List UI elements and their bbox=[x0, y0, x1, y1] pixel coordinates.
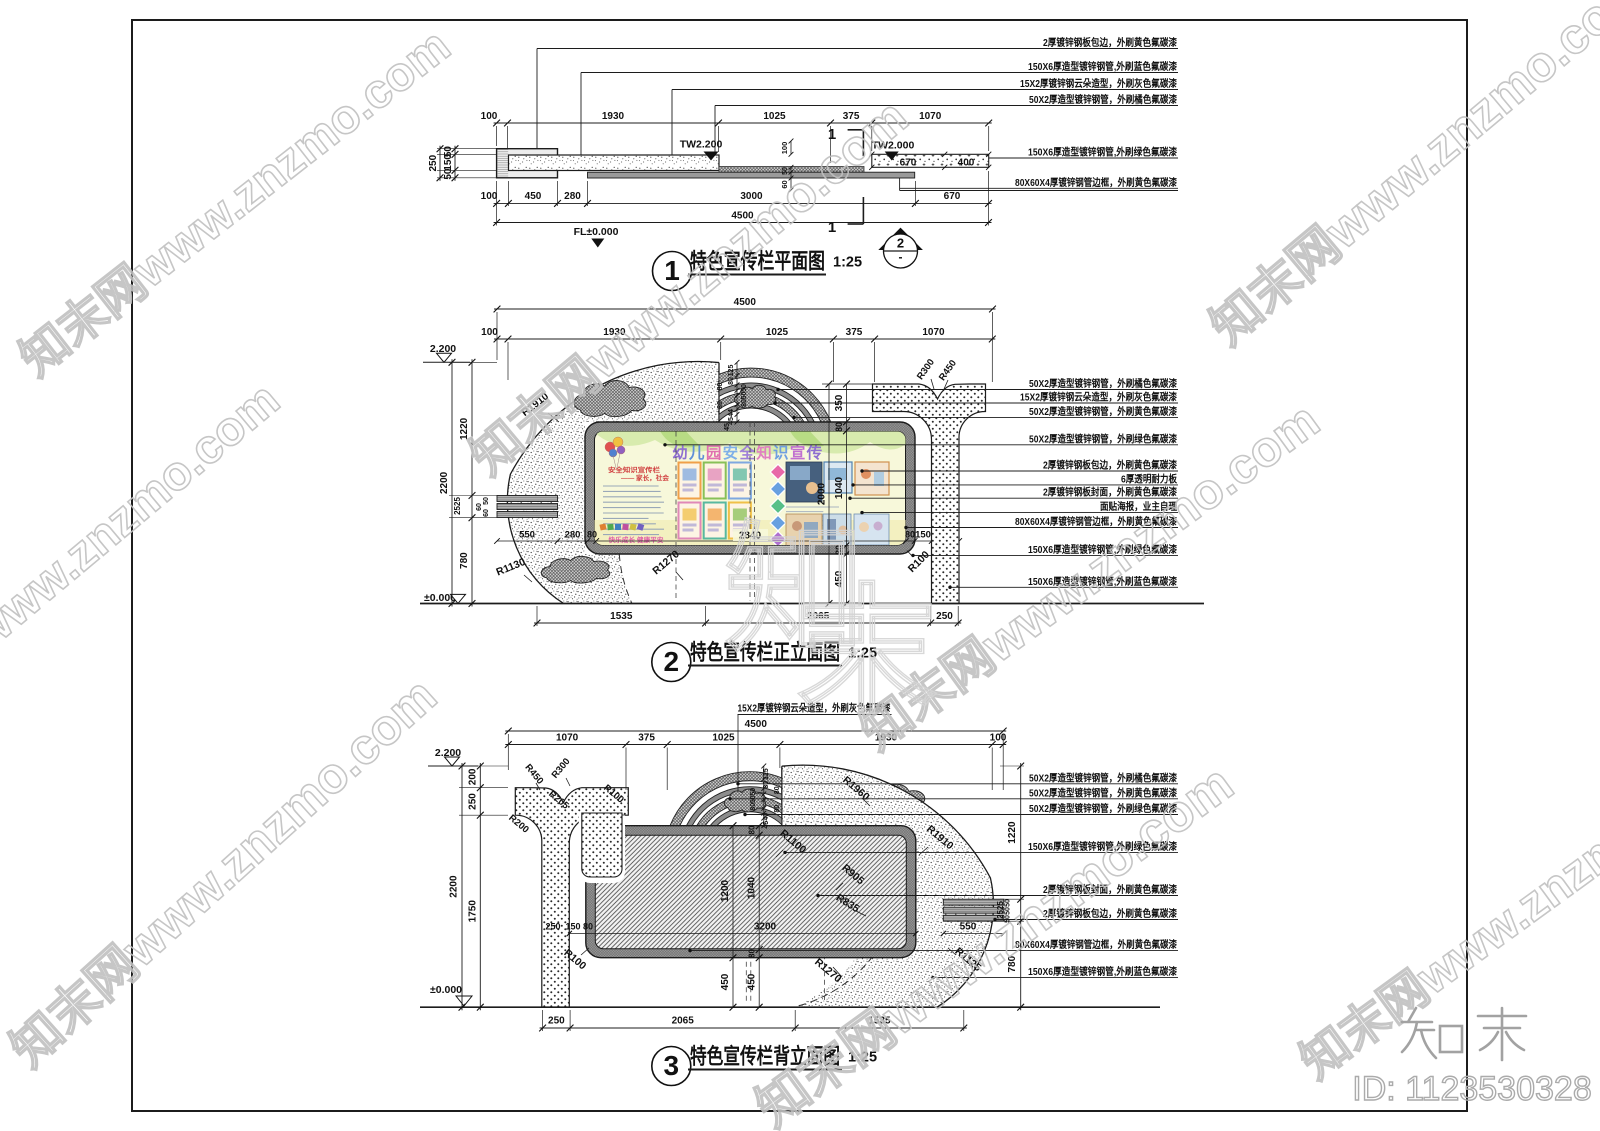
svg-text:670: 670 bbox=[900, 158, 917, 169]
svg-text:200: 200 bbox=[468, 768, 479, 785]
svg-text:50X2厚造型镀锌钢管，外刷橘色氟碳漆: 50X2厚造型镀锌钢管，外刷橘色氟碳漆 bbox=[1029, 771, 1177, 784]
svg-text:250: 250 bbox=[548, 1016, 565, 1027]
svg-text:快乐成长 健康平安: 快乐成长 健康平安 bbox=[609, 535, 665, 544]
svg-text:2200: 2200 bbox=[449, 875, 460, 898]
svg-text:100: 100 bbox=[481, 327, 498, 338]
svg-text:280: 280 bbox=[564, 191, 581, 202]
svg-text:末: 末 bbox=[797, 573, 937, 730]
svg-text:1040: 1040 bbox=[834, 476, 845, 499]
svg-text:670: 670 bbox=[944, 191, 961, 202]
svg-text:50X2厚造型镀锌钢管，外刷绿色氟碳漆: 50X2厚造型镀锌钢管，外刷绿色氟碳漆 bbox=[1029, 432, 1177, 445]
svg-text:50X2厚造型镀锌钢管，外刷橘色氟碳漆: 50X2厚造型镀锌钢管，外刷橘色氟碳漆 bbox=[1029, 93, 1177, 106]
svg-text:150X6厚造型镀锌钢管,外刷绿色氟碳漆: 150X6厚造型镀锌钢管,外刷绿色氟碳漆 bbox=[1028, 146, 1177, 159]
svg-text:3: 3 bbox=[664, 1050, 680, 1081]
svg-text:传: 传 bbox=[806, 443, 823, 462]
svg-text:1: 1 bbox=[828, 219, 836, 236]
svg-text:1040: 1040 bbox=[747, 876, 758, 899]
svg-text:450: 450 bbox=[747, 973, 758, 990]
svg-text:15X2厚镀锌钢云朵造型，外刷灰色氟碳漆: 15X2厚镀锌钢云朵造型，外刷灰色氟碳漆 bbox=[1020, 77, 1177, 90]
svg-text:1750: 1750 bbox=[468, 900, 479, 923]
svg-text:250: 250 bbox=[545, 922, 560, 932]
svg-text:80: 80 bbox=[583, 922, 593, 932]
svg-text:4500: 4500 bbox=[745, 719, 768, 730]
svg-text:80: 80 bbox=[717, 383, 724, 391]
svg-text:幼: 幼 bbox=[672, 443, 688, 462]
svg-text:100: 100 bbox=[780, 142, 789, 155]
svg-text:80: 80 bbox=[741, 399, 748, 407]
svg-text:125: 125 bbox=[728, 365, 735, 377]
svg-text:150: 150 bbox=[443, 154, 454, 171]
svg-text:50: 50 bbox=[750, 788, 757, 796]
svg-text:1930: 1930 bbox=[602, 111, 625, 122]
svg-text:80X60X4厚镀锌钢管边框，外刷黄色氟碳漆: 80X60X4厚镀锌钢管边框，外刷黄色氟碳漆 bbox=[1015, 176, 1177, 189]
svg-text:1025: 1025 bbox=[763, 111, 786, 122]
svg-text:550: 550 bbox=[519, 530, 535, 541]
svg-text:80: 80 bbox=[748, 949, 757, 958]
svg-text:50X2厚造型镀锌钢管，外刷黄色氟碳漆: 50X2厚造型镀锌钢管，外刷黄色氟碳漆 bbox=[1029, 405, 1177, 418]
svg-text:60: 60 bbox=[483, 509, 490, 517]
svg-text:2厚镀锌钢板包边，外刷黄色氟碳漆: 2厚镀锌钢板包边，外刷黄色氟碳漆 bbox=[1043, 459, 1177, 472]
svg-text:60: 60 bbox=[476, 503, 483, 511]
svg-text:安全知识宣传栏: 安全知识宣传栏 bbox=[608, 465, 661, 474]
svg-text:知: 知 bbox=[756, 443, 772, 462]
svg-text:250: 250 bbox=[428, 154, 439, 171]
svg-text:80: 80 bbox=[748, 825, 757, 834]
svg-text:80: 80 bbox=[834, 422, 844, 432]
svg-text:1200: 1200 bbox=[720, 879, 731, 902]
svg-text:1070: 1070 bbox=[919, 111, 942, 122]
svg-text:ID: 1123530328: ID: 1123530328 bbox=[1352, 1070, 1591, 1108]
svg-text:45: 45 bbox=[763, 821, 770, 829]
svg-text:±0.000: ±0.000 bbox=[430, 984, 462, 996]
svg-text:375: 375 bbox=[638, 733, 655, 744]
svg-text:FL±0.000: FL±0.000 bbox=[574, 226, 619, 238]
svg-text:1535: 1535 bbox=[610, 611, 633, 622]
svg-text:2525: 2525 bbox=[453, 497, 462, 515]
svg-text:2: 2 bbox=[897, 236, 904, 251]
svg-text:450: 450 bbox=[720, 973, 731, 990]
svg-text:1220: 1220 bbox=[1007, 821, 1018, 844]
svg-text:375: 375 bbox=[846, 327, 863, 338]
svg-text:40: 40 bbox=[763, 813, 770, 821]
svg-text:TW2.200: TW2.200 bbox=[680, 139, 723, 151]
svg-text:250: 250 bbox=[468, 793, 479, 810]
svg-text:2065: 2065 bbox=[672, 1016, 695, 1027]
svg-text:150X6厚造型镀锌钢管,外刷蓝色氟碳漆: 150X6厚造型镀锌钢管,外刷蓝色氟碳漆 bbox=[1028, 60, 1177, 73]
svg-text:125: 125 bbox=[763, 768, 770, 780]
svg-text:100: 100 bbox=[481, 111, 498, 122]
svg-text:80: 80 bbox=[728, 377, 735, 385]
svg-text:400: 400 bbox=[958, 158, 975, 169]
svg-text:1025: 1025 bbox=[712, 733, 735, 744]
svg-text:2: 2 bbox=[664, 646, 680, 677]
svg-text:1070: 1070 bbox=[556, 733, 579, 744]
svg-text:园: 园 bbox=[706, 444, 722, 462]
svg-text:4500: 4500 bbox=[734, 297, 757, 308]
svg-text:80: 80 bbox=[763, 781, 770, 789]
svg-text:50: 50 bbox=[741, 384, 748, 392]
svg-text:450: 450 bbox=[525, 191, 542, 202]
svg-text:80: 80 bbox=[750, 803, 757, 811]
svg-text:50: 50 bbox=[741, 392, 748, 400]
svg-text:安: 安 bbox=[723, 443, 739, 462]
svg-text:3200: 3200 bbox=[754, 922, 777, 933]
svg-text:44: 44 bbox=[728, 409, 735, 417]
svg-text:780: 780 bbox=[459, 552, 470, 569]
svg-text:1:25: 1:25 bbox=[833, 255, 862, 271]
svg-text:全: 全 bbox=[738, 443, 755, 462]
svg-text:50X2厚造型镀锌钢管，外刷橘色氟碳漆: 50X2厚造型镀锌钢管，外刷橘色氟碳漆 bbox=[1029, 377, 1177, 390]
svg-text:2200: 2200 bbox=[439, 471, 450, 494]
svg-text:1070: 1070 bbox=[922, 327, 945, 338]
svg-text:2000: 2000 bbox=[817, 482, 828, 505]
svg-text:250: 250 bbox=[936, 611, 953, 622]
svg-text:80: 80 bbox=[774, 786, 781, 794]
svg-text:280: 280 bbox=[565, 530, 581, 541]
svg-text:15X2厚镀锌钢云朵造型，外刷灰色氟碳漆: 15X2厚镀锌钢云朵造型，外刷灰色氟碳漆 bbox=[1020, 391, 1177, 404]
svg-text:儿: 儿 bbox=[688, 444, 705, 462]
svg-text:50: 50 bbox=[483, 497, 490, 505]
svg-text:1025: 1025 bbox=[766, 327, 789, 338]
svg-text:宣: 宣 bbox=[790, 443, 806, 462]
svg-text:100: 100 bbox=[481, 191, 498, 202]
svg-text:100: 100 bbox=[990, 733, 1007, 744]
svg-text:—— 家长，社会: —— 家长，社会 bbox=[621, 473, 670, 482]
svg-text:识: 识 bbox=[773, 444, 789, 462]
svg-text:80: 80 bbox=[774, 805, 781, 813]
svg-text:150X6厚造型镀锌钢管,外刷蓝色氟碳漆: 150X6厚造型镀锌钢管,外刷蓝色氟碳漆 bbox=[1028, 965, 1177, 978]
svg-text:±0.000: ±0.000 bbox=[424, 592, 456, 604]
svg-text:80: 80 bbox=[905, 530, 915, 540]
svg-text:-: - bbox=[899, 250, 903, 264]
svg-text:2厚镀锌钢板包边，外刷黄色氟碳漆: 2厚镀锌钢板包边，外刷黄色氟碳漆 bbox=[1043, 36, 1177, 49]
svg-text:150: 150 bbox=[565, 922, 580, 932]
svg-text:150: 150 bbox=[915, 530, 931, 541]
svg-text:80: 80 bbox=[587, 530, 597, 540]
svg-text:80: 80 bbox=[717, 401, 724, 409]
svg-text:45: 45 bbox=[724, 423, 731, 431]
